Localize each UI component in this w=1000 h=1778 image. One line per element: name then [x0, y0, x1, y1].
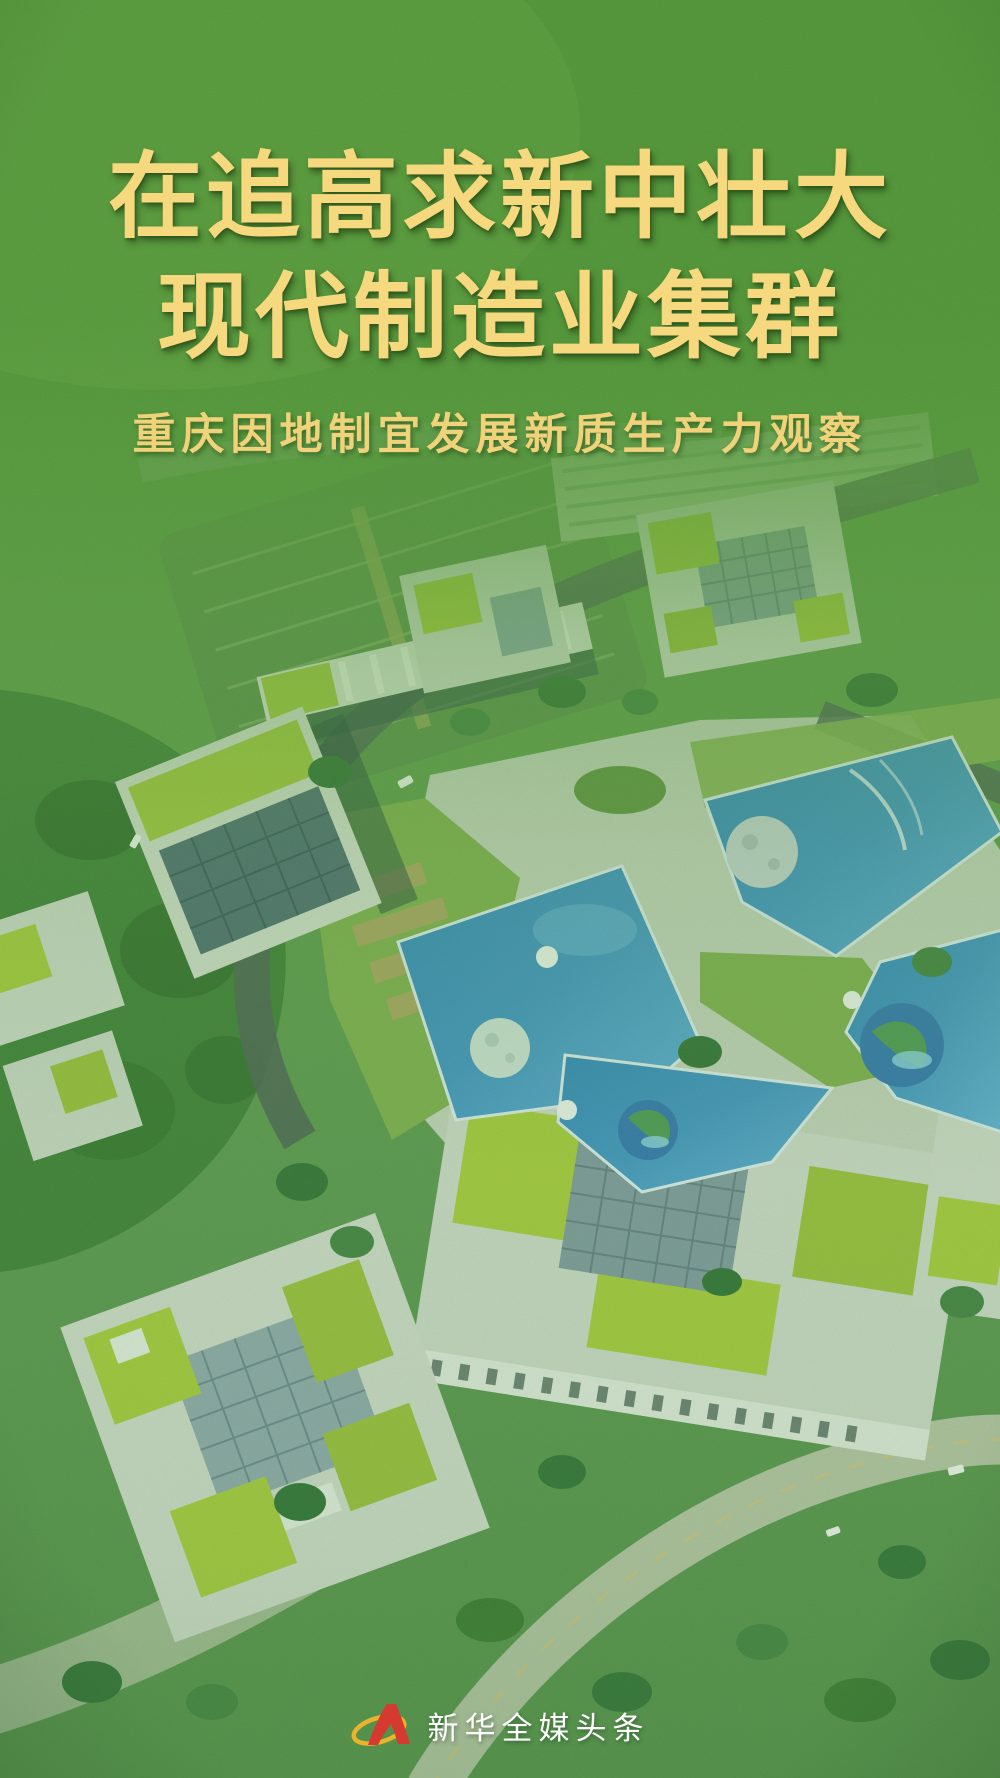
- headline-line-2: 现代制造业集群: [0, 258, 1000, 378]
- brand-label: 新华全媒头条: [428, 1703, 650, 1748]
- xinhua-logo-icon: [351, 1700, 415, 1750]
- subtitle: 重庆因地制宜发展新质生产力观察: [0, 412, 1000, 460]
- headline-block: 在追高求新中壮大 现代制造业集群: [0, 138, 1000, 378]
- headline-line-1: 在追高求新中壮大: [0, 138, 1000, 258]
- news-poster: 在追高求新中壮大 现代制造业集群 重庆因地制宜发展新质生产力观察 新华全媒头条: [0, 0, 1000, 1778]
- brand-footer: 新华全媒头条: [0, 1700, 1000, 1750]
